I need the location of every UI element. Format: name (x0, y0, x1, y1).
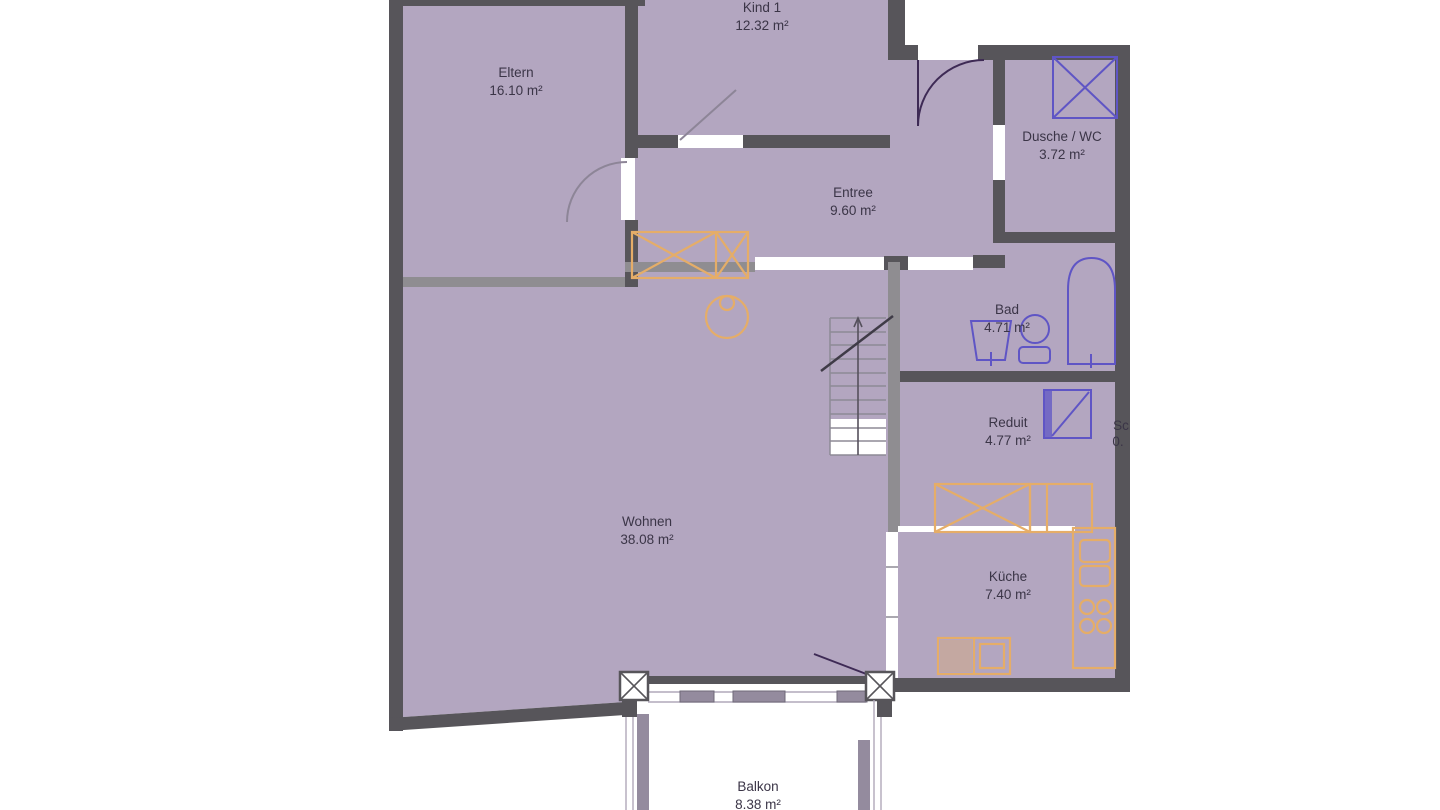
room-label-reduit-area: 4.77 m² (985, 433, 1031, 448)
room-label-kind1-area: 12.32 m² (735, 18, 789, 33)
wall-bad-bottom (893, 371, 1130, 382)
room-label-dusche-name: Dusche / WC (1022, 129, 1102, 144)
room-label-entree-name: Entree (833, 185, 873, 200)
opening-bad-door (908, 257, 973, 270)
floor-plan-page: Eltern 16.10 m² Kind 1 12.32 m² Entree 9… (0, 0, 1440, 810)
wall-dusche-bottom (993, 232, 1130, 243)
room-label-reduit-name: Reduit (988, 415, 1027, 430)
room-label-kueche-area: 7.40 m² (985, 587, 1031, 602)
room-label-bad-name: Bad (995, 302, 1019, 317)
opening-entree-wohnen (755, 257, 884, 270)
wall-entry-jamb (905, 45, 918, 60)
room-label-schacht-clipped-name: Sc (1113, 418, 1129, 433)
room-label-balkon-name: Balkon (737, 779, 778, 794)
wall-balcony-sliding-door (620, 676, 895, 684)
opening-wohnen-kueche (886, 532, 898, 678)
room-label-entree-area: 9.60 m² (830, 203, 876, 218)
opening-kind1-door (678, 135, 743, 148)
balcony-glass-panel (680, 691, 714, 702)
wall-right-outer (1115, 45, 1130, 692)
room-label-eltern-name: Eltern (498, 65, 533, 80)
opening-eltern-door (621, 158, 635, 220)
opening-dusche-door (993, 125, 1005, 180)
wall-top-eltern (389, 0, 645, 6)
room-label-bad-area: 4.71 m² (984, 320, 1030, 335)
wall-entree-bottom-right (973, 255, 1005, 268)
balcony-glass-panel (733, 691, 785, 702)
wall-eltern-bottom (403, 277, 625, 287)
room-label-kind1-name: Kind 1 (743, 0, 781, 15)
room-label-kueche-name: Küche (989, 569, 1027, 584)
wall-stair-right (888, 262, 900, 532)
room-label-wohnen-name: Wohnen (622, 514, 672, 529)
floor-plan-svg: Eltern 16.10 m² Kind 1 12.32 m² Entree 9… (0, 0, 1440, 810)
room-label-balkon-area: 8.38 m² (735, 797, 781, 810)
wall-kind1-right (888, 0, 905, 60)
wall-eltern-right-upper (625, 6, 638, 158)
room-label-wohnen-area: 38.08 m² (620, 532, 674, 547)
balcony-glass-panel (837, 691, 867, 702)
room-label-eltern-area: 16.10 m² (489, 83, 543, 98)
room-label-dusche-area: 3.72 m² (1039, 147, 1085, 162)
opening-entry-door (918, 45, 978, 60)
room-label-schacht-clipped-area: 0. (1112, 434, 1123, 449)
wall-left-outer (389, 0, 403, 731)
wall-kitchen-bottom (884, 678, 1130, 692)
wall-kind1-bottom (638, 135, 890, 148)
